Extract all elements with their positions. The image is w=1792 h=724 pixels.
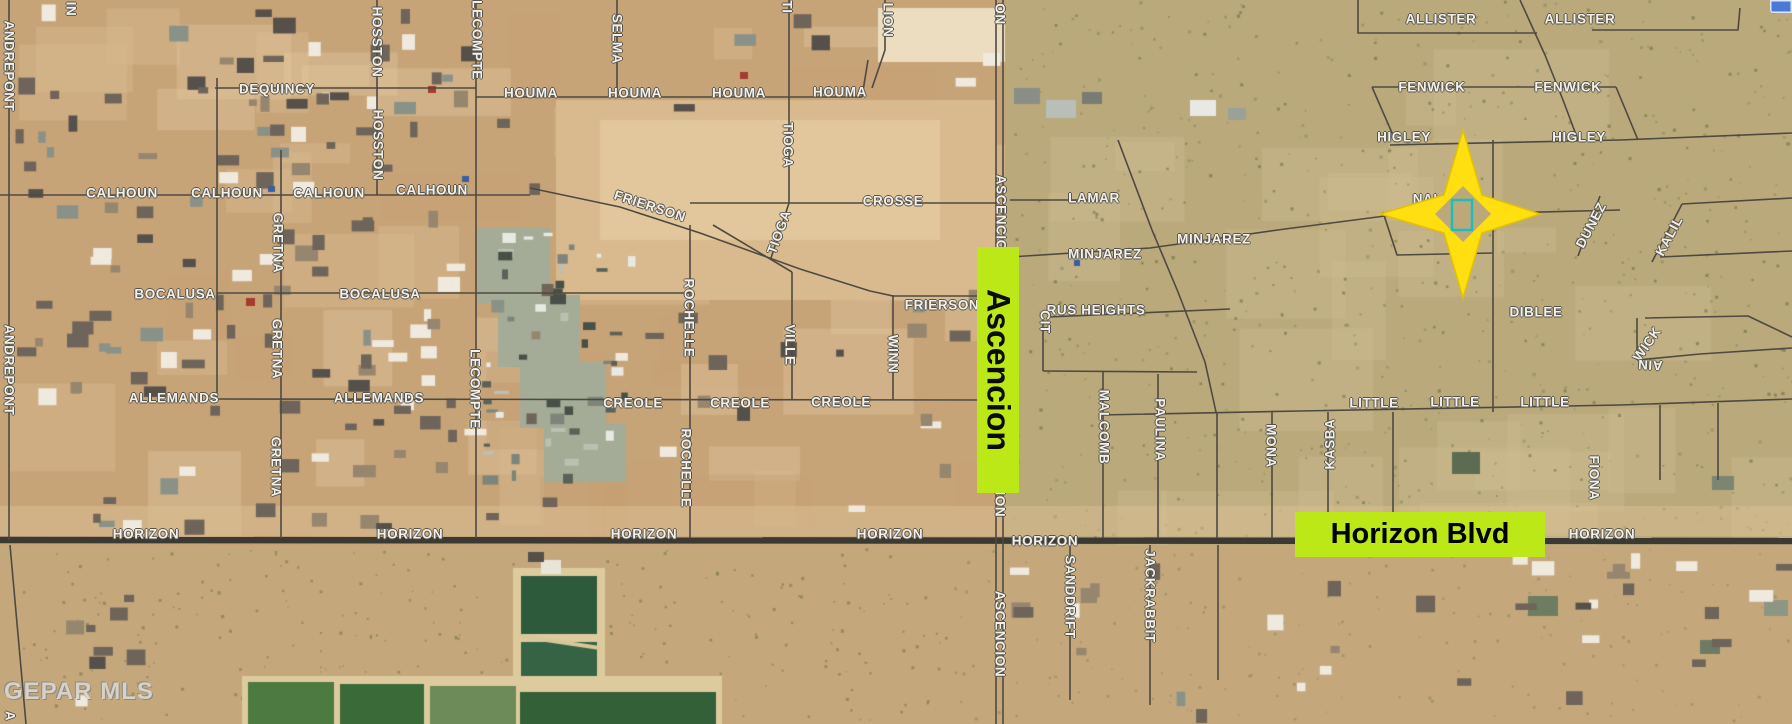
gepar-mls-watermark: GEPAR MLS (4, 678, 154, 706)
map-control-icon[interactable] (1770, 0, 1792, 13)
roads-layer (0, 0, 1792, 724)
ascencion-highlight-label: Ascencion (980, 289, 1017, 451)
map-viewport[interactable]: DEQUINCYCALHOUNCALHOUNCALHOUNCALHOUNHOUM… (0, 0, 1792, 724)
horizon-blvd-highlight-label: Horizon Blvd (1331, 518, 1510, 551)
ascencion-highlight-bar: Ascencion (977, 247, 1019, 493)
horizon-blvd-highlight-box: Horizon Blvd (1295, 512, 1545, 557)
